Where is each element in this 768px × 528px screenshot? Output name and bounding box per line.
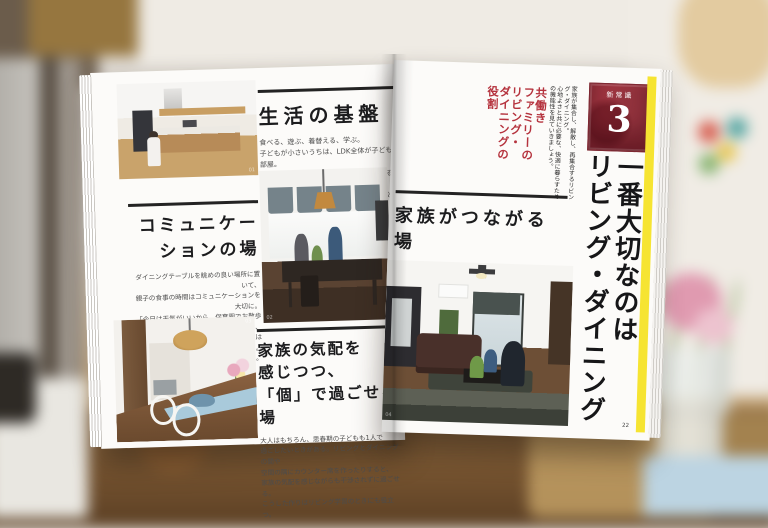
magazine-right-page: 共働き ファミリーの リビング・ ダイニングの 役割 家族が集合し、解散し、再集… — [382, 60, 662, 441]
main-title: 一番大切なのは リビング・ダイニング — [574, 152, 643, 440]
photo-caption: 02 — [266, 315, 273, 321]
open-magazine-spread: 01 生活の基盤 食べる、遊ぶ、着替える、学ぶ。 子どもが小さいうちは、LDK全… — [86, 50, 682, 458]
photo-caption: 03 — [245, 318, 252, 324]
warm-light-glow — [678, 0, 768, 88]
badge-number: 3 — [588, 100, 649, 142]
section-title: コミュニケー ションの場 — [128, 211, 259, 266]
magazine-left-page: 01 生活の基盤 食べる、遊ぶ、着替える、学ぶ。 子どもが小さいうちは、LDK全… — [90, 64, 405, 449]
intro-text: 家族が集合し、解散し、再集合するリビング・ダイニング。 心地よさと共に必要な、快… — [539, 85, 577, 200]
table-leg — [372, 280, 377, 304]
book-spine-shadow — [381, 54, 407, 446]
section-title: 生活の基盤 — [258, 97, 395, 130]
wood-shelf-shape — [159, 106, 245, 116]
window-shade-shape — [473, 292, 520, 316]
kitchen-photo: 01 — [116, 80, 258, 179]
section-title: 家族がつながる場 — [394, 201, 568, 259]
child-figure — [469, 355, 485, 378]
wardrobe-shape — [122, 319, 149, 417]
pink-flowers — [694, 308, 734, 344]
dining-table-shape — [282, 259, 382, 283]
table-leg — [288, 283, 293, 307]
blue-table-runner — [643, 456, 768, 516]
kitchen-island-shape — [157, 125, 241, 153]
dining-family-photo: 02 — [259, 167, 391, 323]
section-rule — [128, 200, 258, 207]
kicker-title: 共働き ファミリーの リビング・ ダイニングの 役割 — [483, 85, 547, 209]
sofa-shape — [153, 380, 176, 395]
dark-chair — [0, 353, 36, 423]
child-figure — [484, 350, 498, 373]
section-rule — [258, 86, 394, 93]
photo-caption: 01 — [249, 167, 256, 173]
air-conditioner-shape — [438, 284, 468, 298]
section-rule — [257, 325, 399, 332]
cabinet-shape — [548, 281, 573, 365]
ceiling-light-shape — [476, 272, 487, 279]
range-hood-shape — [164, 88, 183, 109]
living-room-family-photo: 04 — [382, 260, 573, 426]
father-figure — [327, 226, 342, 263]
bay-window-shape — [268, 210, 382, 259]
wall-decoration — [688, 108, 758, 188]
rattan-pendant-shape — [173, 330, 207, 351]
rule-number-badge: 新常識 3 — [587, 82, 651, 152]
chair-shape — [301, 276, 320, 307]
window-mullion — [40, 48, 58, 378]
father-figure — [500, 341, 526, 387]
child-figure — [147, 137, 160, 166]
wishbone-chair-shape — [172, 403, 200, 437]
pendant-cord — [322, 169, 324, 193]
dining-table-photo: 03 — [113, 316, 258, 442]
page-number: 22 — [622, 423, 629, 429]
